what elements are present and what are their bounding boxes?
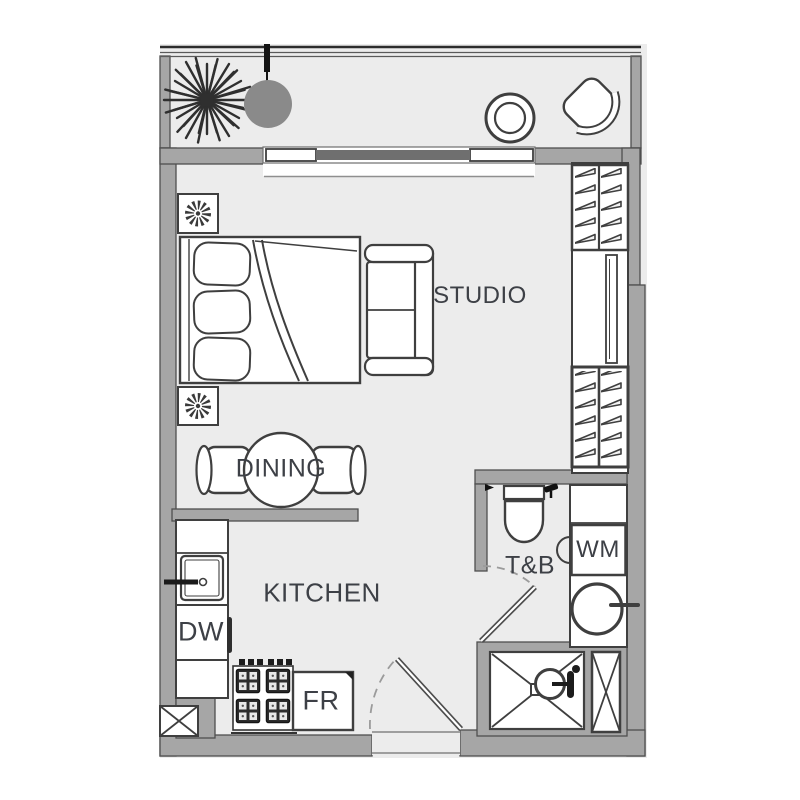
label-fr: FR <box>303 686 340 717</box>
round-table-icon <box>486 94 534 142</box>
shaft-x-icon <box>160 706 198 736</box>
pillow-icon <box>193 337 250 381</box>
wall-bath-left <box>475 484 487 571</box>
toilet-icon <box>504 486 544 542</box>
mirror-panel-icon <box>606 255 617 363</box>
pillow-icon <box>193 242 250 286</box>
balcony-wall-right <box>631 56 641 148</box>
label-kitchen: KITCHEN <box>263 578 381 609</box>
label-wm: WM <box>576 536 620 564</box>
wardrobe <box>572 163 628 473</box>
label-studio: STUDIO <box>433 282 527 310</box>
sofa-icon <box>365 245 433 375</box>
floor-plan-drawing <box>0 0 800 800</box>
bed-icon <box>180 237 360 383</box>
shower-tray-icon <box>490 652 584 729</box>
ceiling-fan-icon <box>178 387 218 425</box>
wall-right-lower <box>627 285 645 756</box>
pillow-icon <box>193 290 250 334</box>
slider-panel <box>316 150 470 160</box>
window-slider-icon <box>263 147 535 177</box>
railing-post <box>264 44 270 72</box>
ceiling-fan-icon <box>178 194 218 233</box>
wall-top-left <box>160 148 264 164</box>
label-bath: T&B <box>505 552 555 581</box>
wall-left <box>160 148 176 756</box>
balcony-wall-left <box>160 56 170 148</box>
stove-icon <box>231 659 297 733</box>
plant-center <box>200 93 214 107</box>
laundry-column <box>557 485 638 647</box>
pendant-ball-icon <box>244 80 292 128</box>
label-dw: DW <box>178 617 224 648</box>
shaft-x-icon <box>592 652 620 732</box>
label-dining: DINING <box>236 455 327 484</box>
cabinet-handle <box>227 617 232 653</box>
floor-plan: STUDIO DINING KITCHEN T&B WM DW FR <box>0 0 800 800</box>
